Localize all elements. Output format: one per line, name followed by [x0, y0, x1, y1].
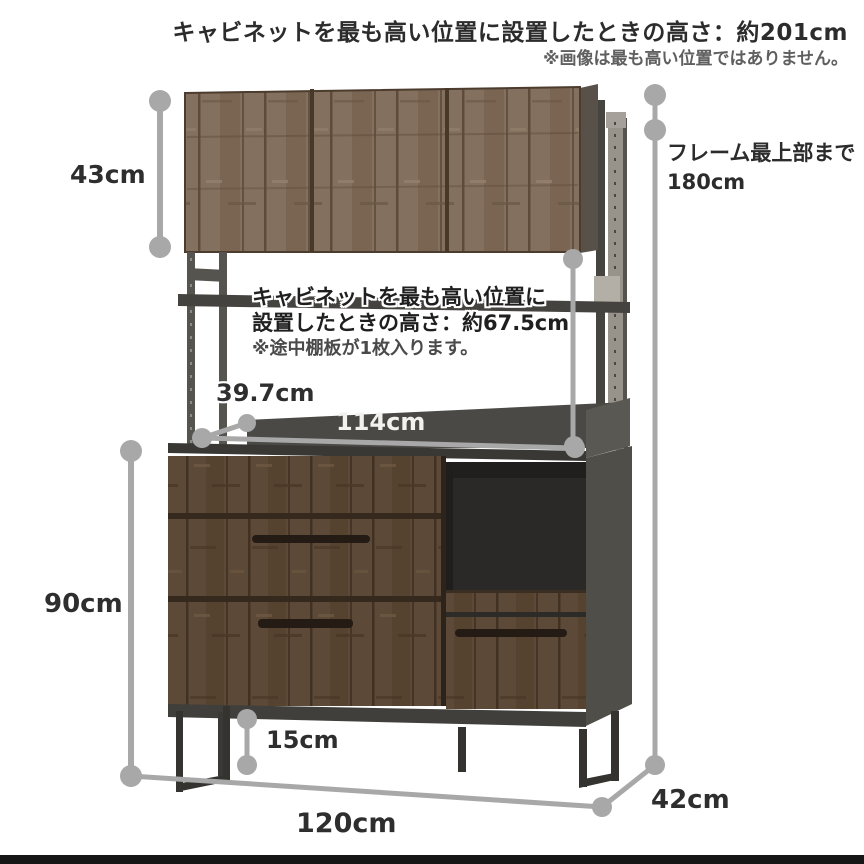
mid-annotation: キャビネットを最も高い位置に 設置したときの高さ：約67.5cm ※途中棚板が1…: [252, 284, 569, 360]
lower-cabinet: [168, 446, 632, 727]
dim-43cm-line: [149, 90, 171, 258]
upper-cabinet: [185, 84, 598, 253]
right-leg: [579, 729, 587, 787]
center-leg: [458, 727, 466, 772]
drawer-handle-groove: [252, 535, 370, 543]
drawer-handle-groove: [258, 619, 353, 628]
frame-top-height-value: 180cm: [667, 168, 855, 197]
upper-cabinet-doors: [185, 87, 580, 252]
dim-15cm-line: [237, 709, 257, 775]
mid-annotation-line2: 設置したときの高さ：約67.5cm: [252, 310, 569, 336]
dim-42cm-line: [602, 765, 655, 807]
lower-side-panel: [586, 446, 632, 726]
dim-180cm-line: [644, 84, 666, 775]
frame-top-label-text: フレーム最上部まで: [667, 139, 855, 168]
mid-annotation-line1: キャビネットを最も高い位置に: [252, 284, 569, 310]
dim-120cm-label: 120cm: [296, 808, 397, 839]
frame-top-label: フレーム最上部まで 180cm: [667, 139, 855, 197]
top-heading: キャビネットを最も高い位置に設置したときの高さ：約201cm: [172, 20, 848, 47]
dim-43cm-label: 43cm: [70, 160, 146, 189]
open-compartment: [446, 462, 586, 592]
upper-cabinet-side-panel: [580, 84, 598, 253]
small-drawer: [446, 592, 586, 612]
dim-15cm-label: 15cm: [266, 727, 339, 755]
door-handle-groove: [455, 629, 567, 637]
drawer-stack: [168, 456, 441, 706]
kitchen-shelf-illustration: [0, 0, 864, 864]
door-divider: [445, 88, 449, 252]
door-divider: [310, 89, 314, 252]
dim-114cm-label: 114cm: [336, 409, 425, 437]
dim-39cm-label: 39.7cm: [216, 380, 314, 408]
left-leg: [223, 706, 230, 782]
dim-90cm-label: 90cm: [44, 589, 123, 619]
dim-90cm-line: [120, 440, 142, 787]
metal-frame-right: [594, 100, 627, 450]
dimension-diagram: キャビネットを最も高い位置に設置したときの高さ：約201cm ※画像は最も高い位…: [0, 0, 864, 864]
top-note: ※画像は最も高い位置ではありません。: [543, 50, 848, 70]
bottom-bar: [0, 855, 864, 864]
dim-42cm-label: 42cm: [651, 785, 730, 815]
frame-rung: [187, 268, 227, 282]
right-leg: [611, 711, 619, 781]
mid-annotation-note: ※途中棚板が1枚入ります。: [252, 339, 569, 360]
